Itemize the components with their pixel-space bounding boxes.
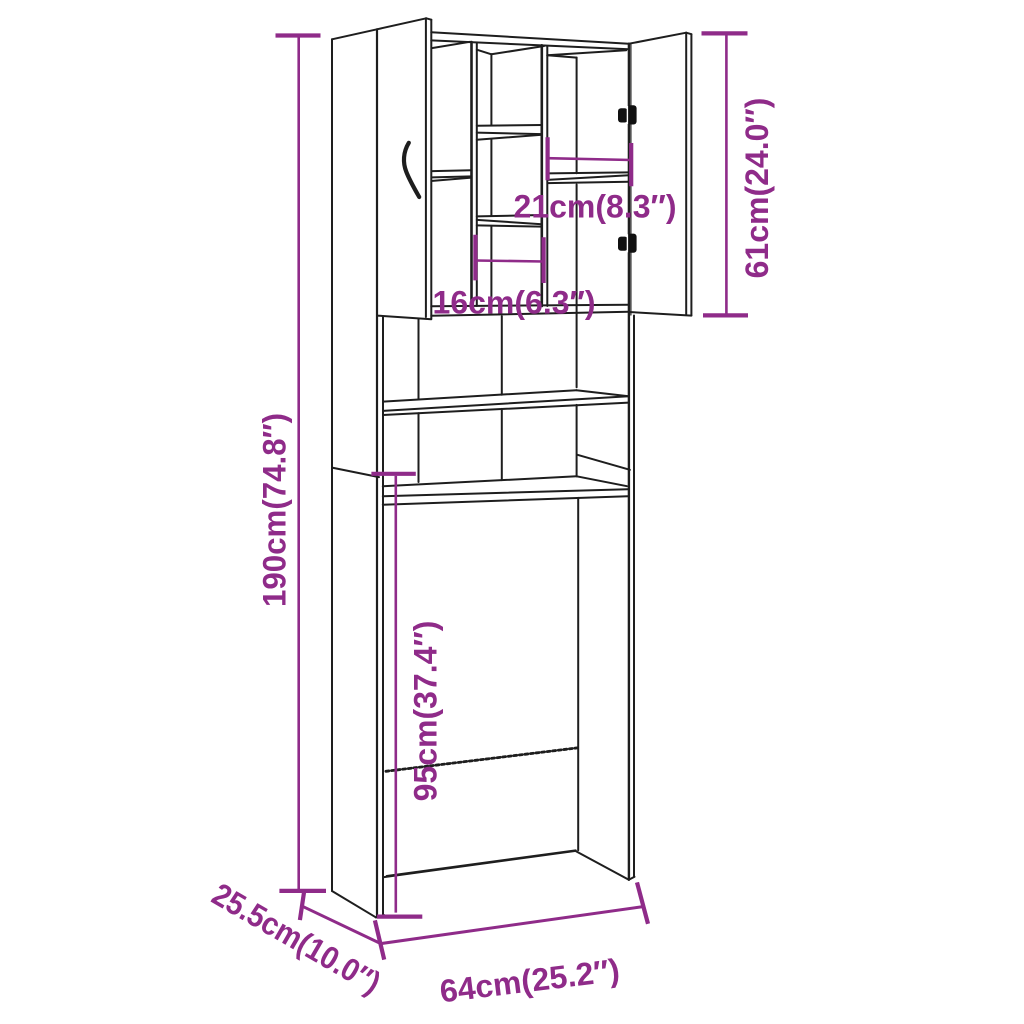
svg-text:61cm(24.0″): 61cm(24.0″) — [739, 98, 775, 279]
svg-text:95cm(37.4″): 95cm(37.4″) — [408, 621, 444, 802]
svg-text:190cm(74.8″): 190cm(74.8″) — [257, 413, 293, 607]
svg-text:16cm(6.3″): 16cm(6.3″) — [433, 285, 596, 321]
svg-text:21cm(8.3″): 21cm(8.3″) — [514, 188, 677, 224]
